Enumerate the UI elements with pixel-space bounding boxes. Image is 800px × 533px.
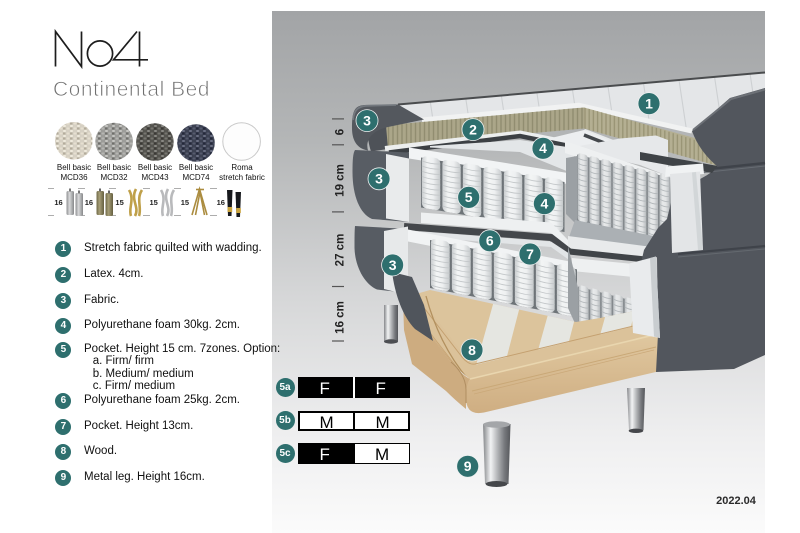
svg-text:15: 15 bbox=[115, 198, 123, 207]
svg-text:15: 15 bbox=[181, 198, 189, 207]
svg-text:16: 16 bbox=[54, 198, 62, 207]
svg-text:16: 16 bbox=[85, 198, 93, 207]
svg-text:9: 9 bbox=[464, 458, 472, 474]
svg-text:15: 15 bbox=[150, 198, 158, 207]
svg-text:16 cm: 16 cm bbox=[335, 301, 347, 334]
svg-text:5: 5 bbox=[465, 189, 473, 205]
svg-text:4: 4 bbox=[541, 195, 549, 211]
svg-text:3: 3 bbox=[389, 257, 397, 273]
svg-text:7: 7 bbox=[526, 246, 534, 262]
svg-text:2: 2 bbox=[469, 121, 477, 137]
svg-text:27 cm: 27 cm bbox=[335, 234, 347, 267]
svg-text:1: 1 bbox=[645, 95, 653, 111]
svg-text:8: 8 bbox=[468, 342, 476, 358]
svg-text:16: 16 bbox=[217, 198, 225, 207]
svg-text:3: 3 bbox=[375, 171, 383, 187]
svg-text:6: 6 bbox=[486, 233, 494, 249]
svg-text:19 cm: 19 cm bbox=[335, 164, 347, 197]
svg-text:4: 4 bbox=[539, 140, 547, 156]
svg-text:3: 3 bbox=[363, 112, 371, 128]
svg-text:2022.04: 2022.04 bbox=[716, 495, 757, 507]
svg-text:6: 6 bbox=[335, 129, 347, 135]
